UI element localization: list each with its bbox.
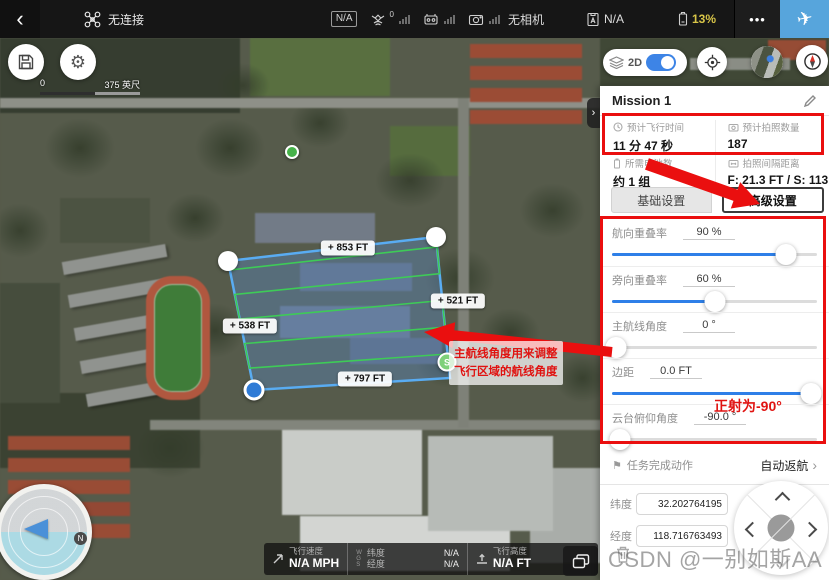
- slider-track[interactable]: [612, 429, 817, 449]
- more-menu-button[interactable]: •••: [734, 0, 780, 38]
- latitude-input[interactable]: 32.202764195: [636, 493, 728, 515]
- slider-value-field[interactable]: -90.0 °: [694, 411, 746, 425]
- edge-length-label[interactable]: + 797 FT: [338, 372, 392, 387]
- panel-header: Mission 1: [600, 86, 829, 116]
- tel-lat-label: 纬度: [367, 548, 385, 559]
- speed-section: 飞行速度 N/A MPH: [264, 543, 347, 575]
- attitude-compass: N: [0, 484, 92, 580]
- edge-length-label[interactable]: + 538 FT: [223, 319, 277, 334]
- rename-mission-button[interactable]: [803, 94, 817, 108]
- back-button[interactable]: ‹: [0, 0, 40, 38]
- locate-me-button[interactable]: [697, 47, 727, 77]
- route-start-marker: S: [438, 353, 457, 372]
- slider-thumb[interactable]: [610, 429, 631, 450]
- battery-group: 13%: [677, 11, 716, 27]
- tel-lng-label: 经度: [367, 559, 385, 570]
- stat-value: 187: [728, 137, 829, 151]
- slider-row-gimbal-pitch: 云台俯仰角度-90.0 °: [600, 404, 829, 450]
- finish-action-label: 任务完成动作: [627, 457, 693, 473]
- save-mission-button[interactable]: [8, 44, 44, 80]
- coords-section: WGS 纬度N/A 经度N/A: [347, 543, 467, 575]
- flag-icon: ⚑: [612, 459, 622, 472]
- slider-label: 边距: [612, 364, 634, 380]
- aircraft-heading-icon: [24, 519, 48, 539]
- takeoff-button[interactable]: ✈: [780, 0, 829, 38]
- tab-basic-settings[interactable]: 基础设置: [611, 187, 712, 213]
- polygon-vertex-handle[interactable]: [218, 251, 238, 271]
- save-icon: [17, 53, 35, 71]
- layers-icon: [609, 56, 624, 69]
- speed-icon: [272, 553, 284, 565]
- pencil-icon: [803, 94, 817, 108]
- clock-icon: [613, 122, 623, 132]
- stat-flight-time: 预计飞行时间 11 分 47 秒: [600, 116, 715, 152]
- settings-tabs: 基础设置 高级设置: [611, 187, 824, 213]
- map-2d-toggle[interactable]: [646, 54, 676, 71]
- camera-status-label: 无相机: [508, 11, 544, 28]
- gear-icon: ⚙: [70, 52, 86, 73]
- slider-value-field[interactable]: 0 °: [683, 319, 735, 333]
- slider-value-field[interactable]: 0.0 FT: [650, 365, 702, 379]
- camera-icon: [468, 13, 484, 26]
- slider-row-margin: 边距0.0 FT: [600, 358, 829, 404]
- connection-status-label: 无连接: [108, 11, 144, 28]
- altitude-value: N/A FT: [493, 557, 531, 571]
- dpad-left-icon[interactable]: [745, 522, 761, 538]
- flight-mode-value: N/A: [604, 12, 624, 26]
- map-scale: 0375 英尺: [40, 78, 140, 95]
- dpad-center-button[interactable]: [768, 515, 795, 542]
- tel-lng-value: N/A: [444, 559, 459, 570]
- slider-thumb[interactable]: [776, 244, 797, 265]
- slider-fill: [612, 392, 811, 395]
- slider-value-field[interactable]: 60 %: [683, 273, 735, 287]
- gps-count: 0: [389, 10, 393, 19]
- chevron-left-icon: ‹: [16, 8, 23, 30]
- battery-small-icon: [613, 158, 621, 169]
- stat-value: 约 1 组: [613, 173, 715, 188]
- map-layers-button[interactable]: [563, 546, 598, 576]
- slider-value-field[interactable]: 90 %: [683, 226, 735, 240]
- map-mode-label: 2D: [628, 57, 642, 69]
- airplane-icon: ✈: [794, 6, 814, 32]
- polygon-vertex-handle[interactable]: [426, 227, 446, 247]
- slider-track[interactable]: [612, 244, 817, 264]
- tab-advanced-settings[interactable]: 高级设置: [722, 187, 825, 213]
- gps-signal-bars-icon: [399, 15, 410, 24]
- dpad-down-icon[interactable]: [775, 552, 791, 568]
- mission-stats: 预计飞行时间 11 分 47 秒 预计拍照数量 187 所需电池数 约 1 组 …: [600, 116, 829, 188]
- finish-action-row[interactable]: ⚑ 任务完成动作 自动返航 ›: [600, 452, 829, 478]
- camera-signal-bars-icon: [489, 15, 500, 24]
- slider-row-side-overlap: 旁向重叠率60 %: [600, 266, 829, 312]
- top-status-bar: ‹ 无连接 N/A 0: [0, 0, 829, 38]
- slider-fill: [612, 300, 715, 303]
- slider-track[interactable]: [612, 337, 817, 357]
- remote-controller-icon: [423, 12, 439, 26]
- toggle-knob: [661, 56, 674, 69]
- slider-track[interactable]: [612, 291, 817, 311]
- slider-fill: [612, 253, 786, 256]
- chevron-right-icon: ›: [812, 457, 817, 473]
- latitude-label: 纬度: [610, 496, 636, 512]
- altitude-section: 飞行高度 N/A FT: [467, 543, 539, 575]
- stat-photo-interval: 拍照间隔距离 F: 21.3 FT / S: 113.6 FT: [715, 152, 829, 188]
- slider-row-route-angle: 主航线角度0 °: [600, 312, 829, 358]
- polygon-vertex-handle-selected[interactable]: [244, 380, 265, 401]
- compass-reset-button[interactable]: [796, 45, 828, 77]
- satellite-icon: [370, 12, 386, 27]
- dpad-up-icon[interactable]: [775, 492, 791, 508]
- crosshair-icon: [704, 54, 721, 71]
- map-thumbnail-icon: [751, 46, 783, 78]
- link-status-badge: N/A: [331, 11, 358, 27]
- slider-thumb[interactable]: [800, 383, 821, 404]
- slider-track[interactable]: [612, 383, 817, 403]
- edge-length-label[interactable]: + 521 FT: [431, 294, 485, 309]
- settings-button[interactable]: ⚙: [60, 44, 96, 80]
- stat-value: 11 分 47 秒: [613, 137, 715, 152]
- map-mode-pill: 2D: [603, 49, 687, 76]
- stat-value: F: 21.3 FT / S: 113.6 FT: [728, 173, 829, 187]
- flight-mode-icon: [585, 11, 601, 27]
- finish-action-value: 自动返航: [760, 457, 808, 474]
- rc-signal-bars-icon: [444, 15, 455, 24]
- north-badge: N: [74, 532, 87, 545]
- slider-label: 主航线角度: [612, 318, 667, 334]
- camera-status-group: 无相机: [468, 11, 544, 28]
- slider-label: 云台俯仰角度: [612, 410, 678, 426]
- altitude-icon: [476, 553, 488, 565]
- chevron-right-icon: ›: [592, 107, 596, 119]
- map-preview-button[interactable]: [751, 46, 783, 78]
- stat-battery-count: 所需电池数 约 1 组: [600, 152, 715, 188]
- stat-photo-count: 预计拍照数量 187: [715, 116, 829, 152]
- compass-needle-icon: [803, 52, 822, 71]
- camera-small-icon: [728, 123, 739, 132]
- speed-value: N/A MPH: [289, 557, 339, 571]
- slider-thumb[interactable]: [606, 337, 627, 358]
- terrain-soccer-field: [146, 276, 210, 400]
- more-dots-icon: •••: [749, 12, 766, 27]
- slider-row-forward-overlap: 航向重叠率90 %: [600, 220, 829, 266]
- connection-group: 无连接: [84, 11, 144, 28]
- app-root: ‹ 无连接 N/A 0: [0, 0, 829, 580]
- tel-lat-value: N/A: [444, 548, 459, 559]
- scale-bar: [40, 92, 140, 95]
- battery-icon: [677, 11, 689, 27]
- stacked-layers-icon: [572, 554, 590, 569]
- longitude-input[interactable]: 118.716763493: [636, 525, 728, 547]
- wgs-label: WGS: [356, 550, 362, 568]
- interval-icon: [728, 159, 739, 168]
- dpad-right-icon[interactable]: [802, 522, 818, 538]
- mission-panel: › Mission 1 预计飞行时间 11 分 47 秒 预计拍照数量 187 …: [600, 86, 829, 580]
- flight-mode-group: N/A: [585, 11, 624, 27]
- longitude-label: 经度: [610, 528, 636, 544]
- nudge-dpad[interactable]: [734, 481, 828, 575]
- status-indicators: N/A 0 无相机: [331, 11, 716, 28]
- waypoint-marker: [285, 145, 299, 159]
- slider-thumb[interactable]: [704, 291, 725, 312]
- slider-label: 旁向重叠率: [612, 272, 667, 288]
- battery-percent: 13%: [692, 12, 716, 26]
- gps-status-group: 0: [370, 12, 409, 27]
- panel-collapse-button[interactable]: ›: [587, 98, 600, 128]
- edge-length-label[interactable]: + 853 FT: [321, 241, 375, 256]
- mission-title: Mission 1: [612, 93, 671, 108]
- slider-label: 航向重叠率: [612, 225, 667, 241]
- drone-icon: [84, 11, 101, 28]
- telemetry-bar: 飞行速度 N/A MPH WGS 纬度N/A 经度N/A 飞行高度 N/A FT: [264, 543, 598, 575]
- scale-end-label: 375 英尺: [104, 78, 140, 91]
- scale-start-label: 0: [40, 78, 45, 91]
- rc-status-group: [423, 12, 455, 26]
